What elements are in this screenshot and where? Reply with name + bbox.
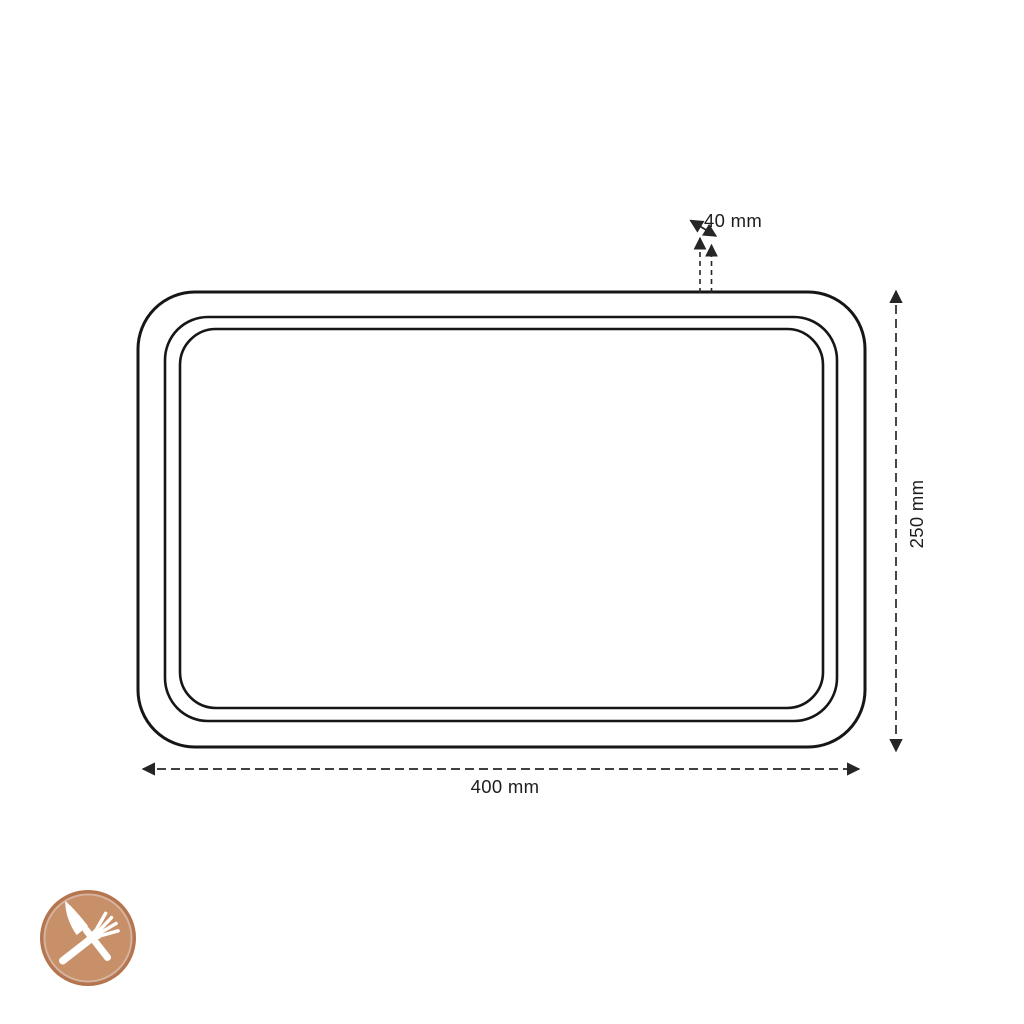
tray-dimension-diagram: 400 mm 250 mm 40 mm: [0, 0, 1024, 1024]
height-dimension-label: 250 mm: [906, 480, 927, 549]
tray-outline: [138, 292, 865, 747]
rim-dimension: 40 mm: [691, 210, 763, 293]
width-dimension: 400 mm: [143, 769, 859, 797]
product-dimension-image: 400 mm 250 mm 40 mm: [0, 0, 1024, 1024]
rim-dimension-label: 40 mm: [704, 210, 762, 231]
brand-logo: [40, 890, 136, 986]
tray-outer-edge: [138, 292, 865, 747]
width-dimension-label: 400 mm: [471, 776, 540, 797]
height-dimension: 250 mm: [896, 291, 927, 751]
tray-middle-edge: [165, 317, 837, 721]
tray-inner-edge: [180, 329, 823, 708]
